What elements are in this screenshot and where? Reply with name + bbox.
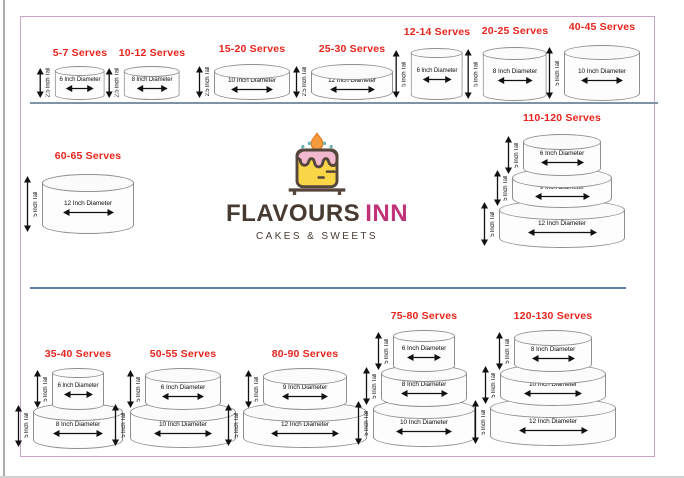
height-arrow-icon (545, 47, 554, 99)
tier-height-label: 5 Inch Tall (121, 413, 127, 438)
serves-label: 40-45 Serves (569, 21, 636, 33)
height-arrow-icon (493, 170, 502, 206)
cake-5-7-serves: 5-7 Serves 2.5 Inch Tall 6 Inch Diameter (53, 47, 108, 100)
diameter-arrow-icon (519, 426, 588, 435)
tier-height-label: 5 Inch Tall (402, 62, 408, 87)
height-arrow-icon (36, 68, 45, 98)
tier-top-ellipse (263, 368, 347, 385)
height-measure: 5 Inch Tall (111, 403, 127, 447)
cake-40-45-serves: 40-45 Serves 5 Inch Tall 10 Inch Diamete… (564, 21, 640, 101)
cake-110-120-serves: 110-120 Serves 5 Inch Tall 6 Inch Diamet… (499, 112, 625, 248)
cake-12-14-serves: 12-14 Serves 5 Inch Tall 6 Inch Diameter (404, 26, 471, 100)
tier-body: 6 Inch Diameter (52, 373, 104, 410)
tier-top-ellipse (523, 134, 601, 150)
cake-60-65-serves: 60-65 Serves 5 Inch Tall 12 Inch Diamete… (42, 150, 134, 234)
cake-tier: 5 Inch Tall 9 Inch Diameter (263, 368, 347, 410)
cake-tier: 2.5 Inch Tall 10 Inch Diameter (214, 64, 290, 100)
height-arrow-icon (471, 400, 480, 444)
cake-tier: 5 Inch Tall 10 Inch Diameter (564, 45, 640, 101)
diameter-arrow-icon (64, 390, 93, 399)
height-measure: 5 Inch Tall (495, 331, 511, 371)
cake-tier: 5 Inch Tall 8 Inch Diameter (483, 47, 547, 101)
serves-label: 75-80 Serves (391, 310, 458, 322)
cake-tier: 2.5 Inch Tall 8 Inch Diameter (124, 66, 180, 100)
tier-height-label: 5 Inch Tall (384, 339, 390, 364)
tier-top-ellipse (55, 66, 105, 76)
height-measure: 5 Inch Tall (374, 331, 390, 371)
tier-height-label: 5 Inch Tall (503, 176, 509, 201)
tier-diameter-label: 8 Inch Diameter (493, 68, 537, 75)
diameter-arrow-icon (581, 76, 623, 85)
tier-height-label: 5 Inch Tall (514, 143, 520, 168)
serves-label: 20-25 Serves (482, 25, 549, 37)
height-measure: 5 Inch Tall (545, 46, 561, 100)
tier-height-label: 5 Inch Tall (254, 377, 260, 402)
tier-height-label: 2.5 Inch Tall (115, 68, 121, 97)
tier-diameter-label: 8 Inch Diameter (132, 77, 173, 83)
height-arrow-icon (105, 68, 114, 98)
serves-label: 60-65 Serves (55, 150, 122, 162)
height-measure: 5 Inch Tall (244, 369, 260, 409)
serves-label: 120-130 Serves (514, 310, 593, 322)
height-arrow-icon (292, 66, 301, 98)
cake-tier: 2.5 Inch Tall 6 Inch Diameter (55, 66, 105, 100)
height-measure: 2.5 Inch Tall (105, 67, 121, 99)
height-measure: 5 Inch Tall (33, 369, 49, 409)
diameter-arrow-icon (401, 389, 448, 398)
tier-body: 6 Inch Diameter (411, 53, 463, 100)
tier-height-label: 5 Inch Tall (43, 377, 49, 402)
height-measure: 5 Inch Tall (471, 399, 487, 445)
height-measure: 5 Inch Tall (362, 366, 378, 406)
diameter-arrow-icon (231, 85, 273, 94)
height-arrow-icon (480, 202, 489, 246)
brand-name-flavours: FLAVOURS (226, 200, 360, 227)
cake-15-20-serves: 15-20 Serves 2.5 Inch Tall 10 Inch Diame… (214, 43, 290, 100)
tier-diameter-label: 6 Inch Diameter (402, 345, 446, 352)
brand-name: FLAVOURSINN (226, 202, 408, 226)
serves-label: 15-20 Serves (219, 43, 286, 55)
serves-label: 110-120 Serves (523, 112, 601, 124)
tier-height-label: 2.5 Inch Tall (302, 67, 308, 96)
cake-tier: 5 Inch Tall 12 Inch Diameter (42, 174, 134, 234)
height-arrow-icon (244, 370, 253, 408)
height-arrow-icon (362, 367, 371, 405)
height-arrow-icon (374, 332, 383, 370)
tier-height-label: 5 Inch Tall (24, 413, 30, 438)
cake-20-25-serves: 20-25 Serves 5 Inch Tall 8 Inch Diameter (482, 25, 549, 101)
diameter-arrow-icon (535, 192, 590, 201)
serves-label: 10-12 Serves (119, 47, 186, 59)
tier-height-label: 5 Inch Tall (481, 410, 487, 435)
cake-75-80-serves: 75-80 Serves 5 Inch Tall 6 Inch Diameter… (373, 310, 475, 447)
tier-diameter-label: 6 Inch Diameter (417, 68, 458, 74)
height-arrow-icon (33, 370, 42, 408)
left-edge-line (3, 0, 5, 478)
cake-flame-shape (311, 133, 323, 149)
tier-height-label: 5 Inch Tall (234, 413, 240, 438)
height-measure: 5 Inch Tall (23, 175, 39, 233)
cake-tier: 5 Inch Tall 6 Inch Diameter (52, 368, 104, 410)
tier-height-label: 2.5 Inch Tall (205, 67, 211, 96)
diameter-arrow-icon (154, 429, 212, 438)
serves-label: 35-40 Serves (45, 348, 112, 360)
tier-height-label: 5 Inch Tall (555, 61, 561, 86)
tier-height-label: 5 Inch Tall (372, 374, 378, 399)
cake-icon (275, 130, 359, 200)
diameter-arrow-icon (282, 392, 328, 401)
diameter-arrow-icon (498, 76, 533, 85)
cake-25-30-serves: 25-30 Serves 2.5 Inch Tall 12 Inch Diame… (311, 43, 393, 100)
tier-body: 8 Inch Diameter (483, 53, 547, 101)
tier-diameter-label: 10 Inch Diameter (159, 421, 207, 428)
diameter-arrow-icon (330, 85, 375, 94)
diameter-arrow-icon (271, 429, 339, 438)
cake-80-90-serves: 80-90 Serves 5 Inch Tall 9 Inch Diameter… (243, 348, 367, 448)
cake-120-130-serves: 120-130 Serves 5 Inch Tall 8 Inch Diamet… (490, 310, 616, 446)
cake-serving-size-chart: 5-7 Serves 2.5 Inch Tall 6 Inch Diameter… (0, 0, 684, 478)
height-arrow-icon (224, 404, 233, 446)
serves-label: 50-55 Serves (150, 348, 217, 360)
tier-top-ellipse (483, 47, 547, 60)
cake-tier: 5 Inch Tall 6 Inch Diameter (523, 134, 601, 176)
tier-diameter-label: 6 Inch Diameter (58, 383, 99, 389)
height-measure: 2.5 Inch Tall (292, 65, 308, 99)
height-arrow-icon (481, 366, 490, 404)
diameter-arrow-icon (63, 208, 114, 217)
height-arrow-icon (495, 332, 504, 370)
top-section-divider (30, 102, 658, 104)
diameter-arrow-icon (528, 228, 597, 237)
cake-tier: 5 Inch Tall 8 Inch Diameter (514, 330, 592, 372)
tier-diameter-label: 9 Inch Diameter (283, 384, 327, 391)
diameter-arrow-icon (407, 353, 441, 362)
height-measure: 5 Inch Tall (224, 403, 240, 447)
tier-diameter-label: 12 Inch Diameter (529, 418, 577, 425)
height-arrow-icon (354, 401, 363, 445)
tier-height-label: 5 Inch Tall (505, 339, 511, 364)
tier-height-label: 5 Inch Tall (491, 373, 497, 398)
cake-icing-shape (297, 150, 337, 167)
tier-height-label: 5 Inch Tall (490, 212, 496, 237)
diameter-arrow-icon (423, 75, 452, 84)
diameter-arrow-icon (137, 84, 168, 93)
height-arrow-icon (464, 49, 473, 99)
diameter-arrow-icon (541, 158, 584, 167)
tier-diameter-label: 8 Inch Diameter (402, 381, 446, 388)
brand-logo: FLAVOURSINN CAKES & SWEETS (237, 130, 397, 242)
diameter-arrow-icon (66, 84, 94, 93)
height-measure: 5 Inch Tall (354, 400, 370, 446)
serves-label: 25-30 Serves (319, 43, 386, 55)
height-measure: 5 Inch Tall (14, 404, 30, 448)
height-measure: 5 Inch Tall (392, 49, 408, 99)
tier-diameter-label: 12 Inch Diameter (538, 220, 586, 227)
serves-label: 12-14 Serves (404, 26, 471, 38)
tier-height-label: 2.5 Inch Tall (46, 68, 52, 97)
height-measure: 5 Inch Tall (504, 135, 520, 175)
diameter-arrow-icon (524, 389, 582, 398)
height-measure: 5 Inch Tall (480, 201, 496, 247)
tier-diameter-label: 12 Inch Diameter (64, 200, 112, 207)
height-arrow-icon (504, 136, 513, 174)
tier-height-label: 5 Inch Tall (33, 192, 39, 217)
cake-tier: 2.5 Inch Tall 12 Inch Diameter (311, 64, 393, 100)
tier-diameter-label: 6 Inch Diameter (60, 77, 101, 83)
tier-height-label: 5 Inch Tall (474, 62, 480, 87)
serves-label: 5-7 Serves (53, 47, 108, 59)
height-measure: 5 Inch Tall (126, 369, 142, 409)
diameter-arrow-icon (532, 354, 575, 363)
height-measure: 5 Inch Tall (481, 365, 497, 405)
tier-diameter-label: 8 Inch Diameter (531, 346, 575, 353)
cake-tier: 5 Inch Tall 6 Inch Diameter (145, 368, 221, 410)
diameter-arrow-icon (53, 429, 103, 438)
height-measure: 5 Inch Tall (464, 48, 480, 100)
diameter-arrow-icon (396, 427, 452, 436)
cake-tray-shape (289, 188, 346, 195)
height-measure: 2.5 Inch Tall (36, 67, 52, 99)
cake-tier: 5 Inch Tall 6 Inch Diameter (411, 48, 463, 100)
tier-diameter-label: 6 Inch Diameter (540, 150, 584, 157)
height-arrow-icon (392, 50, 401, 98)
cake-35-40-serves: 35-40 Serves 5 Inch Tall 6 Inch Diameter… (33, 348, 123, 449)
tier-height-label: 5 Inch Tall (364, 411, 370, 436)
diameter-arrow-icon (162, 392, 204, 401)
tier-diameter-label: 12 Inch Diameter (281, 421, 329, 428)
height-arrow-icon (23, 176, 32, 232)
tier-height-label: 5 Inch Tall (136, 377, 142, 402)
middle-section-divider (30, 287, 626, 289)
tier-diameter-label: 10 Inch Diameter (400, 419, 448, 426)
cake-tier: 5 Inch Tall 6 Inch Diameter (393, 330, 455, 372)
brand-name-inn: INN (365, 200, 408, 227)
cake-10-12-serves: 10-12 Serves 2.5 Inch Tall 8 Inch Diamet… (119, 47, 186, 100)
brand-tagline: CAKES & SWEETS (256, 231, 378, 242)
tier-diameter-label: 6 Inch Diameter (161, 384, 205, 391)
tier-diameter-label: 10 Inch Diameter (578, 68, 626, 75)
height-arrow-icon (126, 370, 135, 408)
tier-diameter-label: 8 Inch Diameter (56, 421, 100, 428)
height-arrow-icon (195, 66, 204, 98)
tier-top-ellipse (514, 330, 592, 346)
cake-50-55-serves: 50-55 Serves 5 Inch Tall 6 Inch Diameter… (130, 348, 236, 448)
height-arrow-icon (14, 405, 23, 447)
height-arrow-icon (111, 404, 120, 446)
serves-label: 80-90 Serves (272, 348, 339, 360)
height-measure: 2.5 Inch Tall (195, 65, 211, 99)
